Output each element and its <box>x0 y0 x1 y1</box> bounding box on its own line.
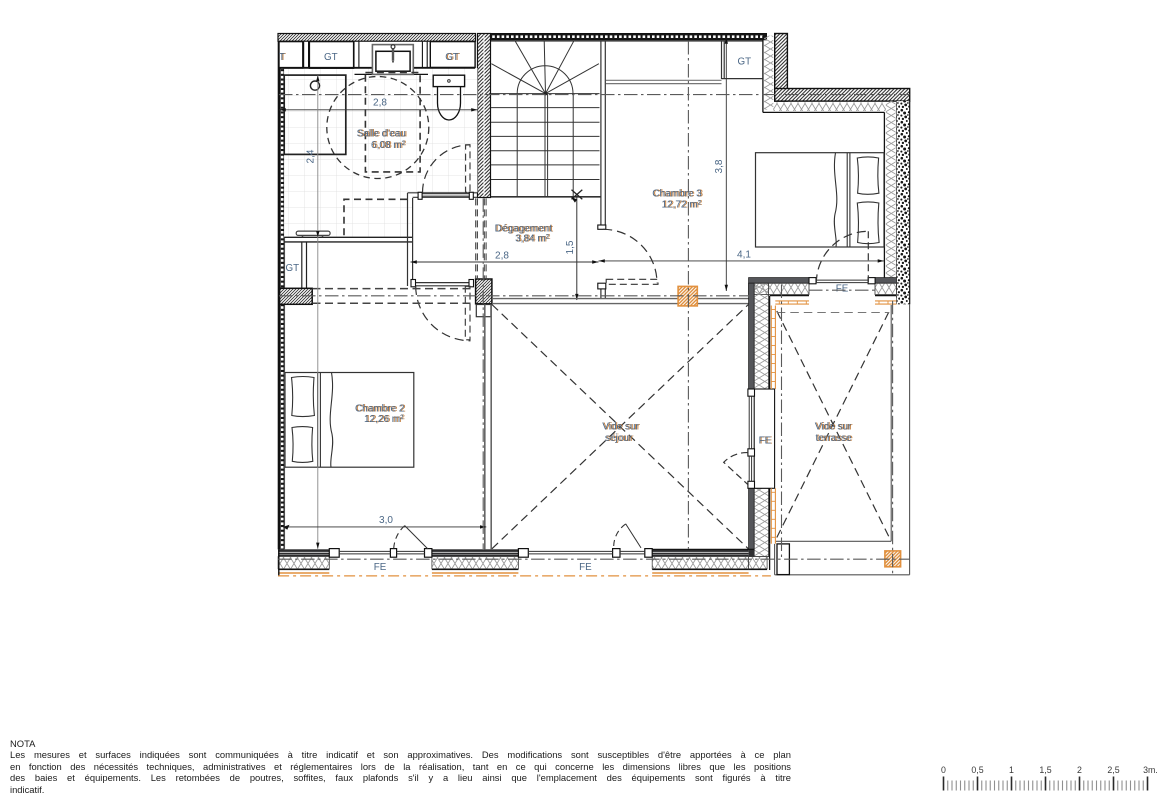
svg-text:2: 2 <box>1077 765 1082 775</box>
svg-text:1,5: 1,5 <box>1039 765 1051 775</box>
svg-text:3m.: 3m. <box>1143 765 1158 775</box>
svg-text:1: 1 <box>1009 765 1014 775</box>
svg-text:2,5: 2,5 <box>1107 765 1119 775</box>
svg-text:0: 0 <box>941 765 946 775</box>
svg-text:0,5: 0,5 <box>971 765 983 775</box>
